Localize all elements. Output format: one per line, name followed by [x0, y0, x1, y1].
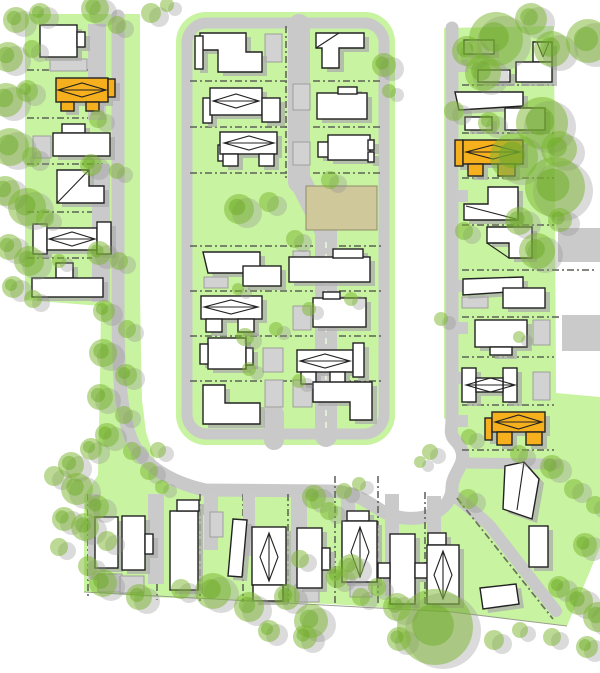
- building: [338, 87, 357, 94]
- tree-core: [412, 604, 454, 646]
- tree: [510, 445, 528, 463]
- tree-core: [457, 41, 474, 58]
- tree-core: [83, 157, 95, 169]
- tree-core: [576, 536, 589, 549]
- tree-core: [96, 303, 108, 315]
- tree-core: [547, 137, 567, 157]
- building: [289, 257, 370, 282]
- tree: [414, 456, 426, 468]
- tree-core: [55, 510, 68, 523]
- driveway: [456, 322, 468, 334]
- tree-core: [75, 517, 90, 532]
- tree: [512, 622, 528, 638]
- tree-core: [525, 239, 545, 259]
- tree-core: [329, 569, 341, 581]
- tree-core: [15, 195, 36, 216]
- tree: [368, 578, 386, 596]
- tree: [24, 290, 42, 308]
- tree: [461, 429, 477, 445]
- building: [480, 584, 519, 609]
- tree: [109, 163, 125, 179]
- tree: [150, 442, 166, 458]
- tree-core: [90, 244, 103, 257]
- tree-core: [85, 0, 100, 15]
- tree-core: [387, 597, 402, 612]
- tree: [344, 292, 358, 306]
- driveway: [456, 415, 468, 427]
- garage: [533, 372, 550, 400]
- building: [177, 500, 199, 511]
- tree-core: [0, 238, 14, 252]
- tree-core: [93, 343, 108, 358]
- tree: [382, 84, 396, 98]
- tree: [543, 628, 561, 646]
- garage: [265, 34, 282, 62]
- highlighted-building: [455, 140, 463, 166]
- building: [323, 292, 340, 299]
- building: [32, 278, 103, 297]
- tree-core: [62, 456, 76, 470]
- tree: [259, 192, 279, 212]
- building: [333, 249, 363, 258]
- tree: [52, 254, 66, 268]
- building: [62, 124, 85, 133]
- tree: [108, 16, 126, 34]
- tree-core: [130, 588, 144, 602]
- tree: [50, 538, 68, 556]
- garage: [210, 512, 223, 537]
- building: [490, 347, 512, 355]
- tree-core: [91, 388, 105, 402]
- tree: [115, 406, 133, 424]
- tree: [422, 444, 438, 460]
- tree-core: [569, 591, 584, 606]
- tree: [171, 579, 191, 599]
- tree: [44, 466, 64, 486]
- tree-core: [7, 11, 21, 25]
- building: [328, 135, 370, 160]
- tree: [232, 283, 244, 295]
- tree-core: [296, 628, 309, 641]
- building: [53, 133, 110, 156]
- tree: [458, 489, 478, 509]
- tree-core: [88, 498, 101, 511]
- building: [223, 154, 238, 166]
- paved-pad: [306, 186, 377, 230]
- tree-core: [278, 588, 292, 602]
- driveway: [562, 315, 600, 351]
- building: [378, 563, 390, 578]
- building: [368, 152, 374, 162]
- garage: [204, 277, 228, 288]
- highlighted-building: [61, 102, 74, 111]
- highlighted-building: [108, 79, 115, 97]
- tree: [155, 480, 169, 494]
- tree: [118, 320, 136, 338]
- tree: [269, 322, 283, 336]
- tree: [89, 110, 107, 128]
- tree: [321, 171, 339, 189]
- tree: [352, 588, 370, 606]
- tree: [236, 328, 254, 346]
- building: [200, 344, 208, 364]
- tree-core: [537, 169, 570, 202]
- tree-core: [375, 56, 388, 69]
- tree-core: [579, 639, 591, 651]
- tree: [564, 479, 584, 499]
- tree-core: [98, 426, 111, 439]
- building: [317, 93, 367, 119]
- tree-core: [499, 142, 525, 168]
- building: [77, 32, 85, 47]
- tree-core: [66, 478, 84, 496]
- tree: [291, 550, 309, 568]
- building: [353, 343, 364, 377]
- tree-core: [261, 623, 273, 635]
- tree: [140, 462, 158, 480]
- tree: [434, 312, 448, 326]
- highlighted-building: [485, 418, 492, 440]
- tree-core: [481, 115, 493, 127]
- tree-core: [19, 83, 31, 95]
- tree: [23, 40, 41, 58]
- building: [529, 526, 548, 567]
- tree: [455, 222, 473, 240]
- tree-core: [540, 37, 560, 57]
- building: [428, 533, 446, 545]
- building: [368, 140, 374, 150]
- building: [347, 511, 369, 521]
- tree-core: [5, 279, 17, 291]
- building: [259, 154, 274, 166]
- highlighted-building: [526, 432, 542, 445]
- building: [170, 511, 198, 590]
- garage: [462, 297, 488, 308]
- tree: [141, 3, 161, 23]
- tree-core: [83, 441, 95, 453]
- building: [262, 98, 280, 122]
- tree-core: [551, 579, 563, 591]
- building: [415, 563, 428, 578]
- building: [503, 288, 545, 308]
- tree-core: [479, 22, 509, 52]
- tree-core: [201, 579, 221, 599]
- tree-core: [93, 573, 108, 588]
- tree-core: [551, 211, 564, 224]
- driveway: [456, 190, 468, 202]
- tree: [36, 209, 54, 227]
- tree-core: [526, 107, 555, 136]
- garage: [293, 142, 310, 165]
- tree-core: [305, 488, 318, 501]
- tree: [110, 252, 128, 270]
- highlighted-building: [86, 102, 99, 111]
- tree-core: [543, 458, 556, 471]
- tree: [320, 502, 338, 520]
- tree: [292, 374, 306, 388]
- tree: [336, 483, 352, 499]
- tree: [242, 362, 256, 376]
- site-plan: [0, 0, 600, 673]
- building: [322, 548, 330, 570]
- tree-core: [19, 251, 36, 268]
- garage: [263, 348, 283, 372]
- tree: [513, 331, 525, 343]
- tree: [352, 477, 366, 491]
- site-plan-map: [0, 0, 600, 673]
- tree-core: [509, 211, 524, 226]
- tree: [444, 101, 464, 121]
- tree-core: [390, 630, 403, 643]
- tree-core: [32, 6, 44, 18]
- tree: [97, 531, 117, 551]
- tree-core: [574, 27, 598, 51]
- building: [206, 319, 222, 332]
- tree: [484, 630, 504, 650]
- tree-core: [118, 367, 130, 379]
- building: [243, 266, 281, 286]
- tree: [302, 302, 316, 316]
- building: [122, 516, 145, 570]
- tree-core: [520, 8, 538, 26]
- tree-core: [229, 199, 246, 216]
- highlighted-building: [497, 432, 512, 445]
- tree: [286, 230, 304, 248]
- tree-core: [471, 61, 491, 81]
- garage: [533, 320, 550, 345]
- tree: [22, 147, 42, 167]
- tree-core: [239, 597, 256, 614]
- building: [195, 36, 203, 69]
- building: [145, 534, 153, 554]
- garage: [293, 84, 310, 110]
- highlighted-building: [468, 164, 483, 176]
- garage: [265, 380, 283, 407]
- tree: [123, 442, 141, 460]
